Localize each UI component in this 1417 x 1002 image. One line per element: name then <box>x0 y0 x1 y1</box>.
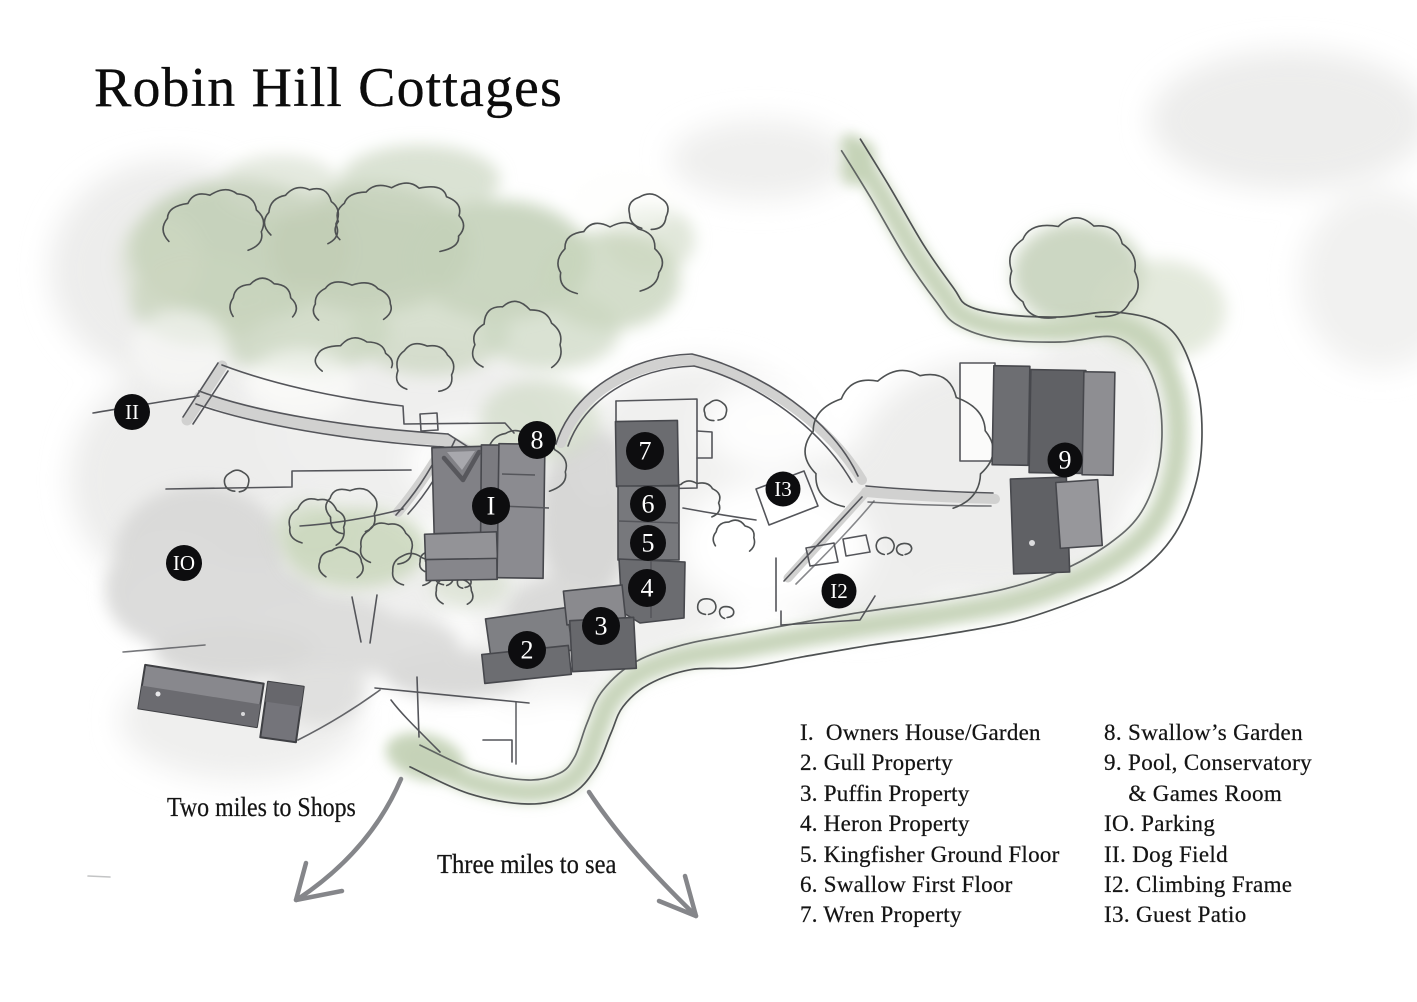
svg-text:4: 4 <box>641 574 654 603</box>
svg-text:8: 8 <box>531 426 544 455</box>
svg-text:I3: I3 <box>774 477 792 501</box>
svg-text:I2: I2 <box>830 579 848 603</box>
svg-text:IO: IO <box>173 551 195 575</box>
svg-text:3: 3 <box>595 612 608 641</box>
svg-text:7: 7 <box>639 437 652 466</box>
svg-text:6: 6 <box>642 490 655 519</box>
svg-text:5: 5 <box>642 529 655 558</box>
svg-text:9: 9 <box>1059 446 1072 475</box>
svg-text:I: I <box>487 492 496 521</box>
svg-text:II: II <box>125 400 139 424</box>
svg-text:2: 2 <box>521 636 534 665</box>
